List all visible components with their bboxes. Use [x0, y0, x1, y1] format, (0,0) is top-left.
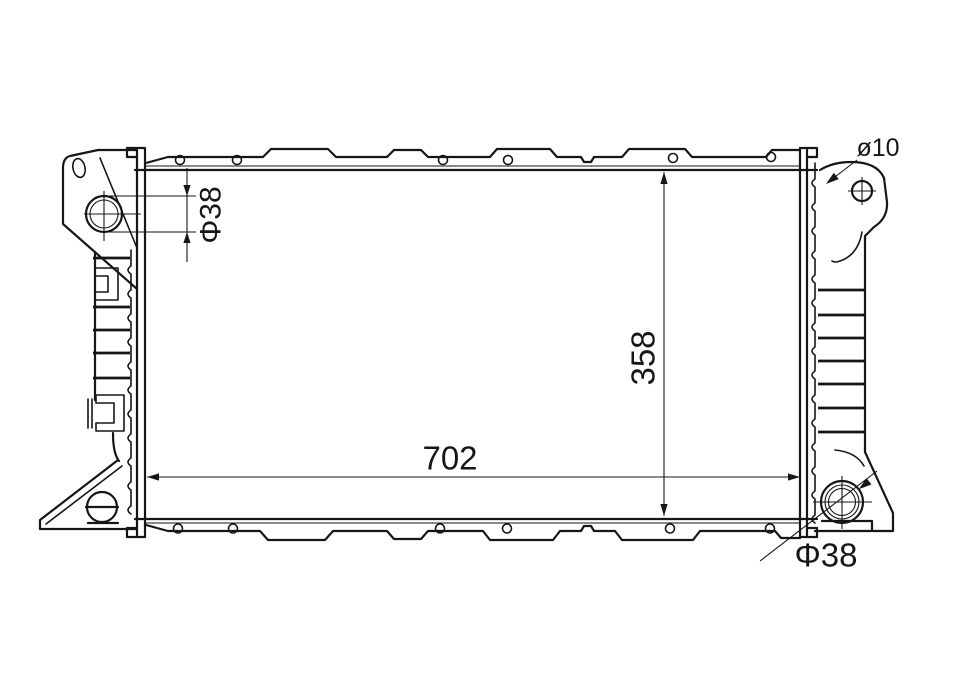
mounting-hole	[669, 154, 678, 163]
dim-label-inlet-diameter: Φ38	[195, 186, 228, 243]
arrowhead	[183, 185, 190, 196]
dim-label-core-height: 358	[625, 330, 662, 385]
left-side-plate	[127, 148, 145, 537]
left-bottom-bracket-outline	[40, 460, 137, 529]
dimension-core-width: 702	[147, 440, 800, 481]
right-tank-ribs	[818, 290, 865, 432]
left-bottom-bracket	[40, 460, 137, 529]
dim-label-outlet-diameter: Φ38	[794, 537, 857, 574]
dim-label-core-width: 702	[422, 440, 477, 477]
left-tank-clamp-lower	[88, 395, 124, 431]
right-bottom-bracket-curve	[835, 450, 864, 466]
bracket-hole-centerlines	[848, 177, 876, 205]
arrowhead	[788, 473, 800, 480]
left-tank	[88, 250, 131, 514]
right-top-bracket-outline	[820, 162, 887, 240]
mounting-hole	[666, 524, 675, 533]
mounting-hole	[504, 156, 513, 165]
dim-label-bracket-hole: ø10	[856, 134, 899, 162]
dimension-bracket-hole: ø10	[826, 134, 900, 184]
left-tank-clamp-upper	[95, 268, 118, 300]
mounting-hole	[767, 153, 776, 162]
dimension-core-height: 358	[625, 172, 668, 516]
dimension-outlet-diameter: Φ38	[760, 471, 877, 574]
left-side-plate-lines	[127, 148, 145, 537]
right-tank-hose-curve	[832, 232, 862, 262]
arrowhead	[147, 473, 159, 480]
left-tank-seam-scallop	[128, 250, 131, 514]
filler-neck	[84, 191, 141, 241]
arrowhead	[660, 172, 667, 184]
arrowhead	[660, 504, 667, 516]
leader-arrowhead	[826, 173, 839, 184]
bottom-flange-profile	[146, 525, 800, 540]
arrowhead	[183, 232, 190, 243]
right-tank-seam-scallop	[812, 163, 815, 523]
right-tank	[812, 163, 865, 523]
left-tank-edge	[95, 252, 119, 461]
drawing-canvas: Φ38 358 702 ø10 Φ38	[0, 0, 961, 682]
top-header-flange	[146, 149, 800, 165]
right-top-bracket	[820, 162, 887, 240]
bracket-slot-hole	[71, 157, 87, 178]
radiator-technical-drawing: Φ38 358 702 ø10 Φ38	[0, 0, 961, 682]
mounting-hole	[503, 524, 512, 533]
top-flange-profile	[146, 149, 800, 163]
bottom-header-flange	[146, 524, 800, 540]
